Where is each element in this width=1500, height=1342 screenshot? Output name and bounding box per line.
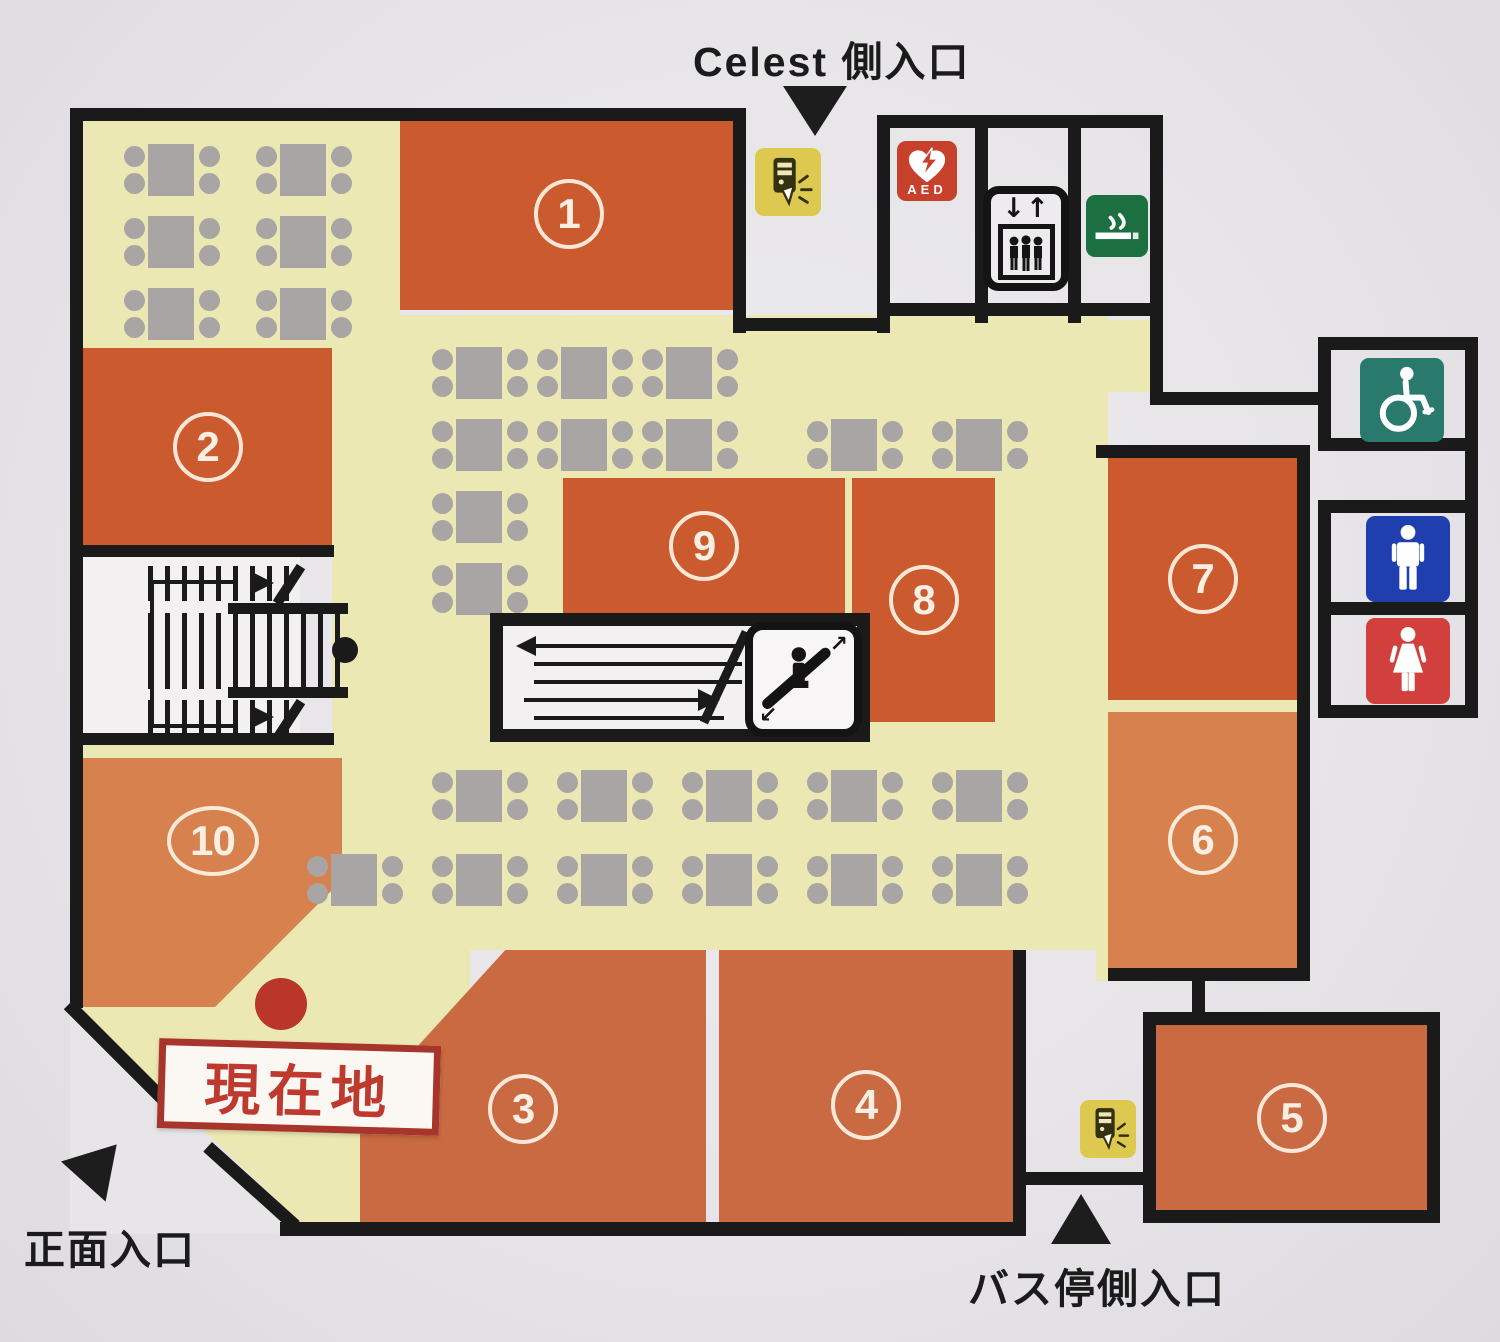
bus-entrance-arrow bbox=[1051, 1194, 1111, 1244]
escalator-icon: ↗ ↙ bbox=[745, 622, 862, 737]
zone-5: 5 bbox=[1156, 1025, 1427, 1210]
dining-floor-right-sliver bbox=[1108, 320, 1150, 392]
current-location-label: 現在地 bbox=[203, 1044, 394, 1130]
table-group bbox=[930, 417, 1030, 473]
front-entrance-label: 正面入口 bbox=[24, 1216, 196, 1276]
elevator-icon: ↓↑ bbox=[983, 186, 1069, 291]
zone-9-number: 9 bbox=[669, 511, 739, 581]
table-group bbox=[805, 852, 905, 908]
zone-10-number: 10 bbox=[167, 806, 259, 876]
zone-5-number: 5 bbox=[1257, 1083, 1327, 1153]
zone-3-number: 3 bbox=[488, 1074, 558, 1144]
current-location-dot bbox=[255, 978, 307, 1030]
zone-2: 2 bbox=[83, 348, 332, 545]
floor-map: 1 2 9 8 7 6 10 3 4 5 bbox=[0, 0, 1500, 1342]
elevator-arrows: ↓↑ bbox=[1002, 195, 1049, 222]
table-group bbox=[122, 214, 222, 270]
table-group bbox=[535, 417, 635, 473]
zone-7: 7 bbox=[1108, 458, 1297, 700]
table-group bbox=[254, 214, 354, 270]
aed-label: AED bbox=[907, 182, 946, 197]
table-group bbox=[930, 768, 1030, 824]
table-group bbox=[680, 768, 780, 824]
zone-8-number: 8 bbox=[889, 565, 959, 635]
current-location-sign: 現在地 bbox=[157, 1038, 441, 1136]
celest-entrance-arrow bbox=[783, 86, 847, 136]
womens-toilet-icon bbox=[1366, 618, 1450, 704]
zone-1: 1 bbox=[400, 118, 737, 310]
zone-6-number: 6 bbox=[1168, 805, 1238, 875]
wheelchair-icon bbox=[1360, 358, 1444, 442]
table-group bbox=[535, 345, 635, 401]
table-group bbox=[930, 852, 1030, 908]
table-group bbox=[305, 852, 405, 908]
table-group bbox=[640, 345, 740, 401]
table-group bbox=[254, 286, 354, 342]
zone-9: 9 bbox=[563, 478, 845, 613]
table-group bbox=[555, 852, 655, 908]
table-group bbox=[122, 286, 222, 342]
celest-entrance-label: Celest 側入口 bbox=[693, 28, 970, 88]
table-group bbox=[805, 417, 905, 473]
zone-4-number: 4 bbox=[831, 1070, 901, 1140]
table-group bbox=[430, 489, 530, 545]
table-group bbox=[122, 142, 222, 198]
elevator-cab bbox=[998, 224, 1055, 280]
table-group bbox=[555, 768, 655, 824]
mens-toilet-icon bbox=[1366, 516, 1450, 602]
table-group bbox=[430, 768, 530, 824]
vending-machine-icon-2 bbox=[1080, 1100, 1136, 1158]
zone-2-number: 2 bbox=[173, 412, 243, 482]
vending-machine-icon bbox=[755, 148, 821, 216]
table-group bbox=[430, 417, 530, 473]
table-group bbox=[805, 768, 905, 824]
table-group bbox=[680, 852, 780, 908]
zone-1-number: 1 bbox=[534, 179, 604, 249]
zone-4: 4 bbox=[719, 950, 1013, 1230]
aed-icon: AED bbox=[897, 141, 957, 201]
bus-entrance-label: バス停側入口 bbox=[968, 1255, 1226, 1315]
zone-6: 6 bbox=[1108, 712, 1297, 968]
table-group bbox=[254, 142, 354, 198]
table-group bbox=[430, 852, 530, 908]
table-group bbox=[640, 417, 740, 473]
zone-8: 8 bbox=[852, 478, 995, 722]
smoking-area-icon bbox=[1086, 195, 1148, 257]
zone-7-number: 7 bbox=[1168, 544, 1238, 614]
table-group bbox=[430, 561, 530, 617]
table-group bbox=[430, 345, 530, 401]
